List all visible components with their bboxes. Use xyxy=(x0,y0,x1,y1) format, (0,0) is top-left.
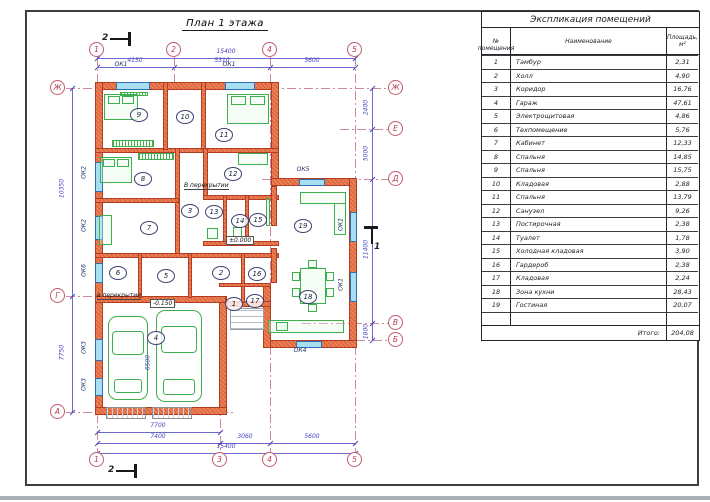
window-label: ОК1 xyxy=(338,215,345,235)
room-name: Кабинет xyxy=(510,136,667,150)
dimension-line xyxy=(97,453,355,454)
room-name: Гараж xyxy=(510,96,667,110)
room-marker-14: 14 xyxy=(231,214,249,228)
room-name: Зона кухни xyxy=(510,285,667,299)
chair xyxy=(292,272,300,281)
grid-bubble-5: 5 xyxy=(347,42,362,57)
room-area: 9,26 xyxy=(667,204,698,218)
room-marker-17: 17 xyxy=(246,294,264,308)
annotation: в перекрытии xyxy=(97,292,141,300)
dim-label: 5600 xyxy=(298,57,326,64)
room-area: 2,24 xyxy=(667,271,698,285)
room-number: 15 xyxy=(482,244,510,258)
dim-label: 3060 xyxy=(231,433,259,440)
table-row: 18Зона кухни28,43 xyxy=(482,285,699,299)
room-area: 1,78 xyxy=(667,231,698,245)
table-row: 10Кладовая2,88 xyxy=(482,177,699,191)
dim-label: 1800 xyxy=(363,318,370,346)
sink xyxy=(276,322,288,331)
total-value: 204,08 xyxy=(667,326,698,340)
table-row: 7Кабинет12,33 xyxy=(482,136,699,150)
room-name: Техпомещение xyxy=(510,123,667,137)
table-row: 11Спальня13,79 xyxy=(482,190,699,204)
room-marker-7: 7 xyxy=(140,221,158,235)
section-mark-line xyxy=(116,470,136,472)
room-area: 5,76 xyxy=(667,123,698,137)
section-mark-flag xyxy=(128,32,131,46)
grid-bubble-3: 3 xyxy=(212,452,227,467)
wardrobe xyxy=(138,153,174,160)
window-label: ОК1 xyxy=(338,275,345,295)
room-schedule-title: Экспликация помещений xyxy=(482,12,699,28)
radiator xyxy=(120,92,148,96)
grid-bubble-В: В xyxy=(388,315,403,330)
room-number: 10 xyxy=(482,177,510,191)
room-area: 16,76 xyxy=(667,82,698,96)
room-marker-18: 18 xyxy=(299,290,317,304)
washing-machine xyxy=(207,228,218,239)
room-marker-12: 12 xyxy=(224,167,242,181)
room-number: 3 xyxy=(482,82,510,96)
room-number: 11 xyxy=(482,190,510,204)
interior-wall xyxy=(271,248,277,283)
room-number: 17 xyxy=(482,271,510,285)
exterior-wall xyxy=(271,82,279,186)
dim-label: 7750 xyxy=(59,339,66,367)
room-name: Спальня xyxy=(510,150,667,164)
elevation-mark: ±0.000 xyxy=(226,236,254,245)
room-schedule-rows: 1Тамбур2,312Холл4,903Коридор16,764Гараж4… xyxy=(482,55,699,312)
section-mark-flag xyxy=(134,464,137,478)
room-marker-5: 5 xyxy=(157,269,175,283)
room-marker-13: 13 xyxy=(205,205,223,219)
window xyxy=(95,378,103,396)
room-area: 20,07 xyxy=(667,298,698,312)
grid-bubble-Ж: Ж xyxy=(388,80,403,95)
exterior-wall xyxy=(263,283,271,348)
window-bottom-edge xyxy=(0,496,710,500)
dimension-line xyxy=(72,88,73,412)
dimension-line xyxy=(372,88,373,340)
interior-wall xyxy=(241,253,245,303)
page-title: План 1 этажа xyxy=(150,11,300,30)
room-number: 1 xyxy=(482,55,510,69)
grid-bubble-4: 4 xyxy=(262,42,277,57)
grid-bubble-Г: Г xyxy=(50,288,65,303)
total-label: Итого: xyxy=(482,326,667,340)
section-mark-label: 2 xyxy=(108,465,114,475)
chair xyxy=(308,304,317,312)
room-number: 9 xyxy=(482,163,510,177)
room-number: 19 xyxy=(482,298,510,312)
grid-bubble-5: 5 xyxy=(347,452,362,467)
total-row: Итого: 204,08 xyxy=(482,325,699,340)
room-number: 5 xyxy=(482,109,510,123)
car xyxy=(156,310,202,402)
room-marker-10: 10 xyxy=(176,110,194,124)
room-area: 4,86 xyxy=(667,109,698,123)
room-area: 12,33 xyxy=(667,136,698,150)
room-area: 47,61 xyxy=(667,96,698,110)
dim-label: 2400 xyxy=(363,94,370,122)
room-name: Кладовая xyxy=(510,177,667,191)
chair xyxy=(308,260,317,268)
window-label: ОК1 xyxy=(219,61,239,68)
grid-line xyxy=(174,57,175,85)
interior-wall xyxy=(95,198,179,203)
desk xyxy=(99,215,112,245)
car xyxy=(108,316,148,400)
room-number: 8 xyxy=(482,150,510,164)
interior-wall xyxy=(219,283,271,287)
table-row: 5Электрощитовая4,86 xyxy=(482,109,699,123)
table-row: 14Туалет1,78 xyxy=(482,231,699,245)
dim-label: 10350 xyxy=(59,175,66,203)
room-area: 2,31 xyxy=(667,55,698,69)
column-header-area: Площадь,м² xyxy=(667,28,698,54)
table-row: 17Кладовая2,24 xyxy=(482,271,699,285)
room-name: Туалет xyxy=(510,231,667,245)
window-label: ОК2 xyxy=(81,163,88,183)
room-marker-3: 3 xyxy=(181,204,199,218)
exterior-wall xyxy=(219,296,227,415)
room-name: Гардероб xyxy=(510,258,667,272)
room-name: Спальня xyxy=(510,190,667,204)
dim-label: 15400 xyxy=(212,443,240,450)
column-header-name: Наименование xyxy=(510,28,667,54)
section-mark-label: 1 xyxy=(374,242,380,252)
table-row: 2Холл4,90 xyxy=(482,69,699,83)
dim-label: 7400 xyxy=(144,433,172,440)
room-area: 3,90 xyxy=(667,244,698,258)
table-row: 9Спальня15,75 xyxy=(482,163,699,177)
table-row: 15Холодная кладовая3,90 xyxy=(482,244,699,258)
window-label: ОК1 xyxy=(111,61,131,68)
room-name: Тамбур xyxy=(510,55,667,69)
grid-bubble-1: 1 xyxy=(89,452,104,467)
table-row: 4Гараж47,61 xyxy=(482,96,699,110)
wardrobe xyxy=(112,140,154,147)
room-schedule-header: № помещения Наименование Площадь,м² xyxy=(482,28,699,55)
garage-door xyxy=(106,407,146,419)
window xyxy=(95,263,103,283)
exterior-wall xyxy=(95,82,103,415)
room-number: 4 xyxy=(482,96,510,110)
room-number: 14 xyxy=(482,231,510,245)
table-row: 13Постирочная2,38 xyxy=(482,217,699,231)
dim-label: 5000 xyxy=(363,140,370,168)
room-marker-16: 16 xyxy=(248,267,266,281)
window-label: ОК3 xyxy=(81,338,88,358)
grid-bubble-Д: Д xyxy=(388,171,403,186)
chair xyxy=(326,272,334,281)
grid-line xyxy=(340,129,389,130)
window xyxy=(225,82,255,90)
room-marker-11: 11 xyxy=(215,128,233,142)
section-mark-line xyxy=(110,38,130,40)
room-marker-19: 19 xyxy=(294,219,312,233)
room-area: 28,43 xyxy=(667,285,698,299)
room-area: 14,85 xyxy=(667,150,698,164)
room-area: 4,90 xyxy=(667,69,698,83)
room-name: Санузел xyxy=(510,204,667,218)
room-area: 13,79 xyxy=(667,190,698,204)
room-marker-8: 8 xyxy=(134,172,152,186)
column-header-number: № помещения xyxy=(482,28,510,54)
grid-bubble-Е: Е xyxy=(388,121,403,136)
dim-label: 11400 xyxy=(363,236,370,264)
grid-bubble-Ж: Ж xyxy=(50,80,65,95)
room-schedule-table: Экспликация помещений № помещения Наимен… xyxy=(481,11,700,341)
annotation: В перекрытии xyxy=(184,182,229,190)
elevation-mark: -0.150 xyxy=(150,299,175,308)
dim-label: 5600 xyxy=(298,433,326,440)
room-area: 2,38 xyxy=(667,217,698,231)
interior-wall xyxy=(203,148,208,200)
grid-bubble-2: 2 xyxy=(166,42,181,57)
bed xyxy=(100,157,132,183)
window xyxy=(299,179,325,186)
interior-wall xyxy=(201,82,206,150)
bed xyxy=(227,94,269,124)
window-label: ОК4 xyxy=(290,347,310,354)
room-name: Холл xyxy=(510,69,667,83)
dim-label: 15400 xyxy=(212,48,240,55)
table-row: 19Гостиная20,07 xyxy=(482,298,699,312)
bathtub xyxy=(238,153,268,165)
room-number: 6 xyxy=(482,123,510,137)
porch-steps xyxy=(230,308,264,330)
section-mark-flag xyxy=(364,226,378,229)
interior-wall xyxy=(188,253,192,298)
room-marker-15: 15 xyxy=(249,213,267,227)
table-row: 12Санузел9,26 xyxy=(482,204,699,218)
room-marker-6: 6 xyxy=(109,266,127,280)
interior-wall xyxy=(271,186,277,226)
room-name: Спальня xyxy=(510,163,667,177)
window xyxy=(350,212,357,242)
room-area: 15,75 xyxy=(667,163,698,177)
room-marker-4: 4 xyxy=(147,331,165,345)
room-number: 2 xyxy=(482,69,510,83)
section-mark-label: 2 xyxy=(102,33,108,43)
room-number: 16 xyxy=(482,258,510,272)
page-title-text: План 1 этажа xyxy=(182,18,268,31)
window-label: ОК2 xyxy=(81,216,88,236)
grid-bubble-А: А xyxy=(50,404,65,419)
table-row: 6Техпомещение5,76 xyxy=(482,123,699,137)
table-row: 1Тамбур2,31 xyxy=(482,55,699,69)
room-name: Кладовая xyxy=(510,271,667,285)
dim-label: 6500 xyxy=(145,349,152,377)
window-label: ОК3 xyxy=(81,375,88,395)
drawing-sheet: План 1 этажа 154004150531056007700740030… xyxy=(0,0,710,502)
room-marker-9: 9 xyxy=(130,108,148,122)
dim-label: 7700 xyxy=(144,422,172,429)
room-area: 2,38 xyxy=(667,258,698,272)
room-marker-1: 1 xyxy=(225,297,243,311)
room-area: 2,88 xyxy=(667,177,698,191)
table-row: 8Спальня14,85 xyxy=(482,150,699,164)
window xyxy=(95,339,103,361)
window-label: ОК5 xyxy=(293,166,313,173)
room-name: Коридор xyxy=(510,82,667,96)
room-number: 18 xyxy=(482,285,510,299)
grid-bubble-4: 4 xyxy=(262,452,277,467)
chair xyxy=(326,288,334,297)
grid-bubble-1: 1 xyxy=(89,42,104,57)
table-row: 3Коридор16,76 xyxy=(482,82,699,96)
garage-door xyxy=(152,407,192,419)
empty-row xyxy=(482,312,699,326)
room-name: Постирочная xyxy=(510,217,667,231)
window xyxy=(350,272,357,302)
grid-bubble-Б: Б xyxy=(388,332,403,347)
exterior-wall xyxy=(349,178,357,348)
interior-wall xyxy=(95,253,279,258)
room-name: Гостиная xyxy=(510,298,667,312)
window-label: ОК6 xyxy=(81,261,88,281)
room-number: 13 xyxy=(482,217,510,231)
room-number: 7 xyxy=(482,136,510,150)
room-name: Электрощитовая xyxy=(510,109,667,123)
room-name: Холодная кладовая xyxy=(510,244,667,258)
table-row: 16Гардероб2,38 xyxy=(482,258,699,272)
interior-wall xyxy=(175,148,180,258)
interior-wall xyxy=(163,82,168,150)
window xyxy=(116,82,150,90)
room-marker-2: 2 xyxy=(212,266,230,280)
room-number: 12 xyxy=(482,204,510,218)
